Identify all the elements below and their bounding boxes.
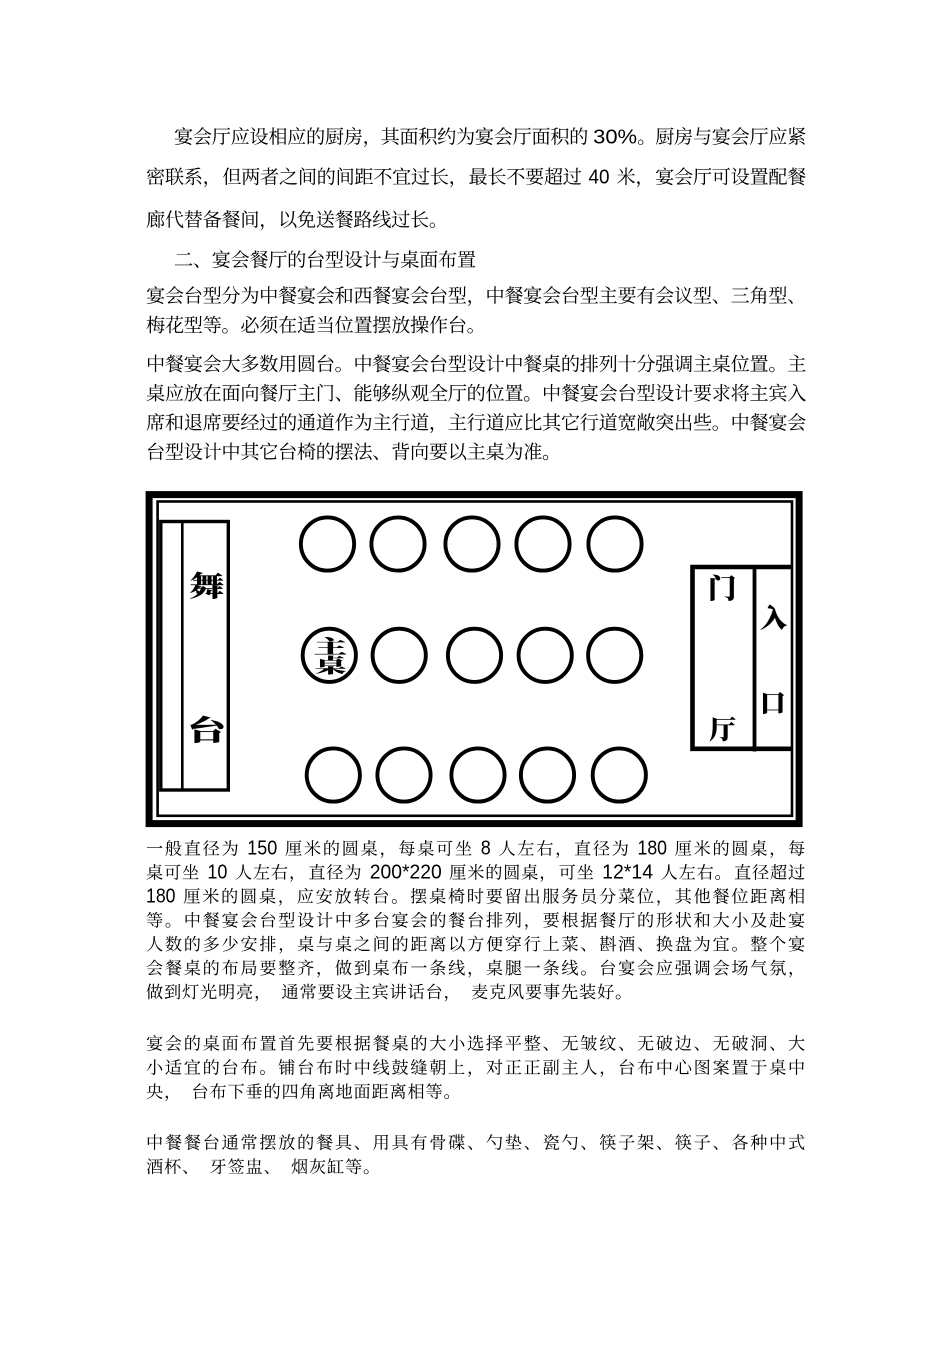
svg-text:150: 150 bbox=[247, 838, 277, 860]
svg-text:180: 180 bbox=[146, 885, 176, 907]
svg-text:30%: 30% bbox=[593, 125, 637, 148]
svg-text:12*14: 12*14 bbox=[602, 862, 653, 884]
svg-text:200*220: 200*220 bbox=[370, 862, 442, 884]
svg-text:8: 8 bbox=[481, 838, 491, 860]
svg-text:180: 180 bbox=[638, 838, 668, 860]
svg-text:40: 40 bbox=[589, 166, 610, 189]
svg-text:10: 10 bbox=[207, 862, 227, 884]
